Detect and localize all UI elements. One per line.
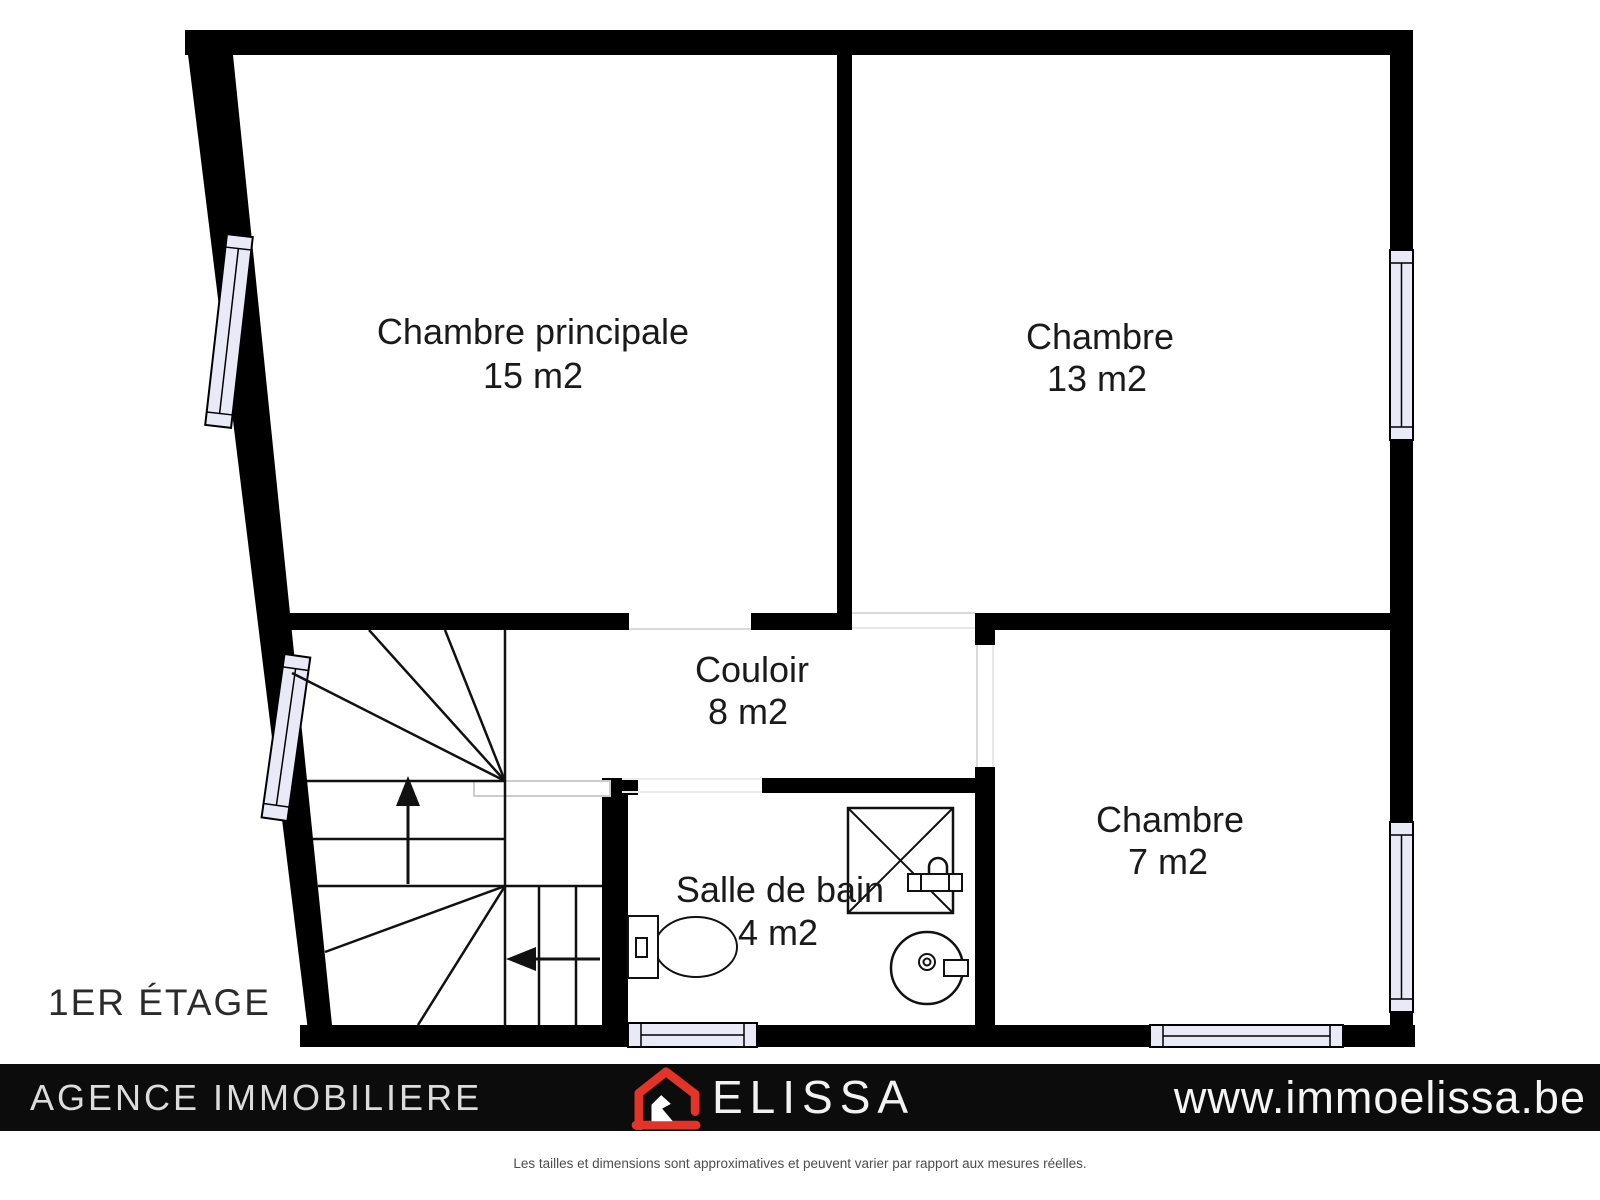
floor-plan-page: Chambre principale 15 m2 Chambre 13 m2 C… [0, 0, 1600, 1200]
room-area-chambre-7: 7 m2 [1128, 841, 1208, 882]
room-area-chambre-13: 13 m2 [1047, 358, 1147, 399]
floor-level-label: 1ER ÉTAGE [48, 982, 271, 1024]
sink-icon [891, 932, 968, 1004]
brand-name: ELISSA [712, 1064, 915, 1131]
wall-couloir-north-left [285, 613, 629, 630]
room-label-chambre-7: Chambre [1096, 799, 1244, 840]
wall-couloir-north-mid [751, 613, 852, 630]
stairs-up-arrow-icon [396, 776, 420, 884]
room-area-salle-de-bain: 4 m2 [738, 912, 818, 953]
wall-top [185, 30, 1413, 55]
room-label-couloir: Couloir [695, 649, 809, 690]
toilet-icon [628, 916, 737, 978]
wall-bath-west [602, 778, 628, 1025]
website-link[interactable]: www.immoelissa.be [1174, 1064, 1586, 1131]
window-icon [1390, 250, 1413, 440]
staircase [292, 630, 602, 1025]
agency-logo [628, 1066, 706, 1135]
wall-pillar [975, 613, 995, 645]
wall-bath-north [762, 778, 975, 793]
room-area-couloir: 8 m2 [708, 691, 788, 732]
room-area-chambre-principale: 15 m2 [483, 355, 583, 396]
wall-ch7-west [975, 767, 995, 1047]
disclaimer-text: Les tailles et dimensions sont approxima… [0, 1156, 1600, 1171]
room-label-salle-de-bain: Salle de bain [676, 869, 884, 910]
agency-name: AGENCE IMMOBILIERE [30, 1064, 482, 1131]
stair-landing-opening [474, 781, 610, 796]
window-icon [1390, 822, 1413, 1012]
room-label-chambre-principale: Chambre principale [377, 311, 689, 352]
red-house-logo-icon [628, 1066, 706, 1130]
floor-plan-drawing: Chambre principale 15 m2 Chambre 13 m2 C… [0, 0, 1600, 1060]
room-label-chambre-13: Chambre [1026, 316, 1174, 357]
wall-left-slanted [185, 30, 332, 1047]
window-icon [628, 1023, 757, 1047]
stairs-down-arrow-icon [506, 947, 600, 971]
footer-bar: AGENCE IMMOBILIERE ELISSA www.immoelissa… [0, 1064, 1600, 1131]
wall-bedroom-divider [837, 55, 852, 630]
wall-ch13-ch7-divider [975, 613, 1413, 630]
window-icon [1150, 1025, 1343, 1047]
room-labels: Chambre principale 15 m2 Chambre 13 m2 C… [377, 311, 1244, 953]
